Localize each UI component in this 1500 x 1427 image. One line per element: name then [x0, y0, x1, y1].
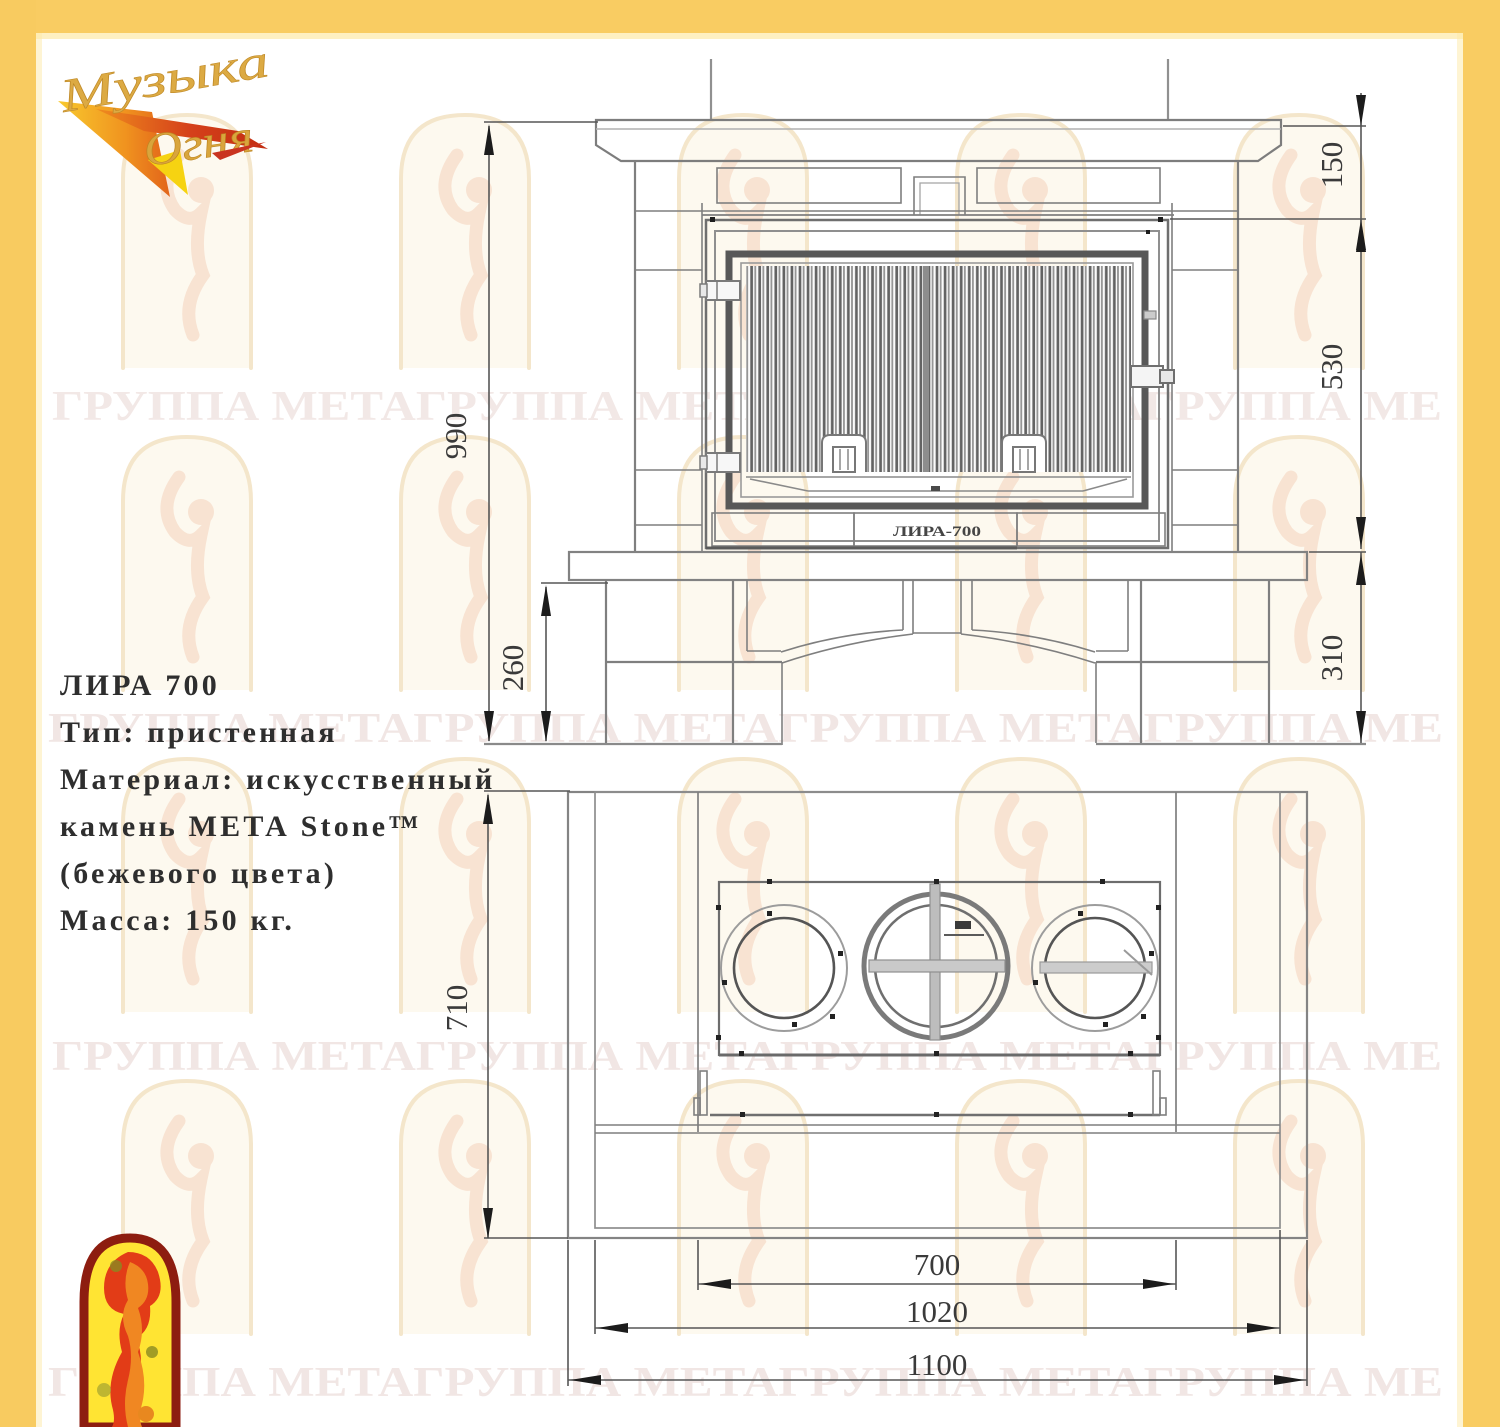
svg-text:Материал: искусственный: Материал: искусственный — [60, 763, 495, 796]
svg-text:Масса: 150 кг.: Масса: 150 кг. — [60, 904, 295, 937]
svg-text:260: 260 — [495, 645, 530, 692]
svg-text:(бежевого цвета): (бежевого цвета) — [60, 857, 337, 890]
svg-text:ЛИРА-700: ЛИРА-700 — [893, 524, 981, 540]
svg-text:700: 700 — [914, 1247, 961, 1282]
svg-text:310: 310 — [1314, 635, 1349, 682]
svg-text:ГРУППА МЕТАГРУППА МЕТАГРУППА М: ГРУППА МЕТАГРУППА МЕТАГРУППА МЕТАГРУППА … — [52, 1034, 1442, 1080]
svg-text:ЛИРА 700: ЛИРА 700 — [60, 669, 220, 702]
svg-text:камень МЕТА Stone™: камень МЕТА Stone™ — [60, 810, 422, 843]
svg-text:1020: 1020 — [906, 1294, 968, 1329]
svg-text:530: 530 — [1314, 344, 1349, 391]
svg-text:1100: 1100 — [907, 1347, 968, 1382]
svg-text:150: 150 — [1314, 142, 1349, 189]
svg-text:710: 710 — [439, 985, 474, 1032]
svg-text:990: 990 — [438, 413, 473, 460]
svg-text:ГРУППА МЕТАГРУППА МЕТАГРУППА М: ГРУППА МЕТАГРУППА МЕТАГРУППА МЕТАГРУППА … — [48, 1360, 1443, 1406]
svg-text:Тип: пристенная: Тип: пристенная — [60, 716, 338, 749]
